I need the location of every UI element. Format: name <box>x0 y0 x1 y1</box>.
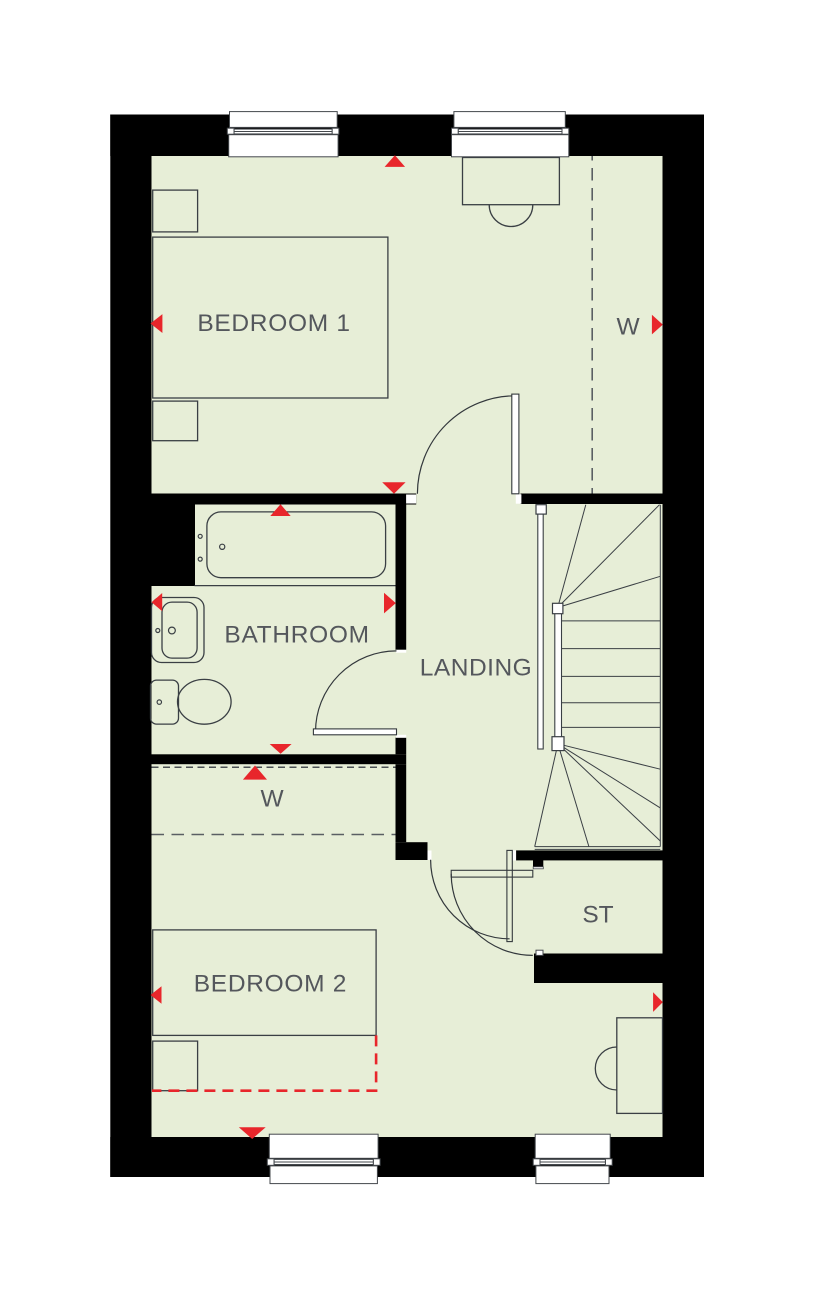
svg-text:W: W <box>616 314 640 341</box>
svg-text:ST: ST <box>582 902 613 929</box>
svg-text:BATHROOM: BATHROOM <box>224 622 369 649</box>
svg-text:BEDROOM 2: BEDROOM 2 <box>194 971 347 998</box>
svg-text:W: W <box>260 786 284 813</box>
svg-text:BEDROOM 1: BEDROOM 1 <box>197 310 350 337</box>
svg-text:LANDING: LANDING <box>420 655 532 682</box>
